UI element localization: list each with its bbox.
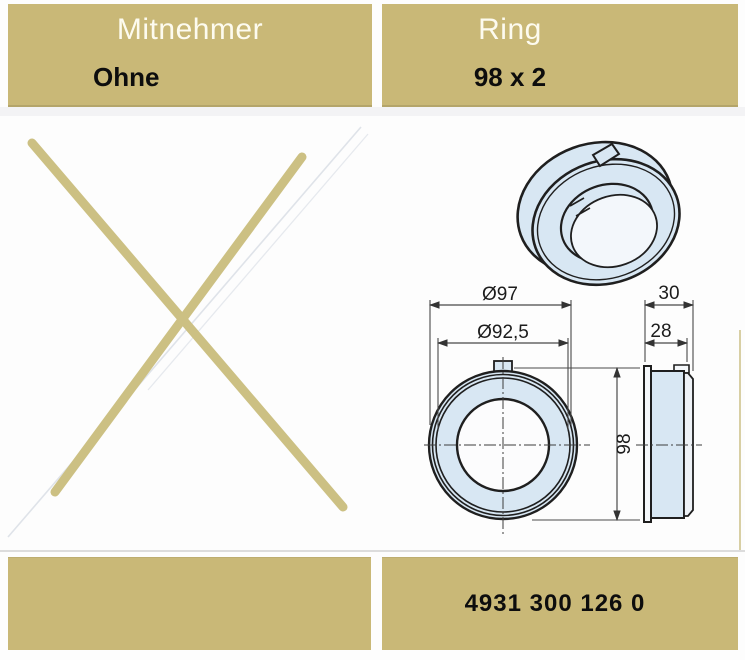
footer-cell-part-number: 4931 300 126 0 [382,557,738,650]
footer-cell-empty [8,557,371,650]
footer-divider [0,550,745,552]
ring-technical-drawing: Ø97 Ø92,5 98 30 28 [385,110,745,555]
front-view [424,357,590,537]
side-view [636,365,702,522]
left-panel-canvas [0,110,385,555]
dim-label-depth-body: 28 [650,321,671,342]
column-header-mitnehmer: Mitnehmer [8,13,372,47]
dimension-depth-body: 28 [645,321,687,362]
header-cell-ring: Ring 98 x 2 [382,4,738,107]
isometric-ring-view [499,121,697,305]
dim-label-inner-diameter: Ø92,5 [477,322,529,343]
dim-label-height: 98 [614,433,635,454]
column-header-ring: Ring [382,13,738,47]
dim-label-depth-total: 30 [658,283,679,304]
not-available-cross-icon [32,143,343,507]
dim-label-outer-diameter: Ø97 [482,284,518,305]
column-value-ring-size: 98 x 2 [382,62,738,93]
part-number: 4931 300 126 0 [465,590,656,618]
header-cell-mitnehmer: Mitnehmer Ohne [8,4,372,107]
column-value-ohne: Ohne [8,62,372,93]
